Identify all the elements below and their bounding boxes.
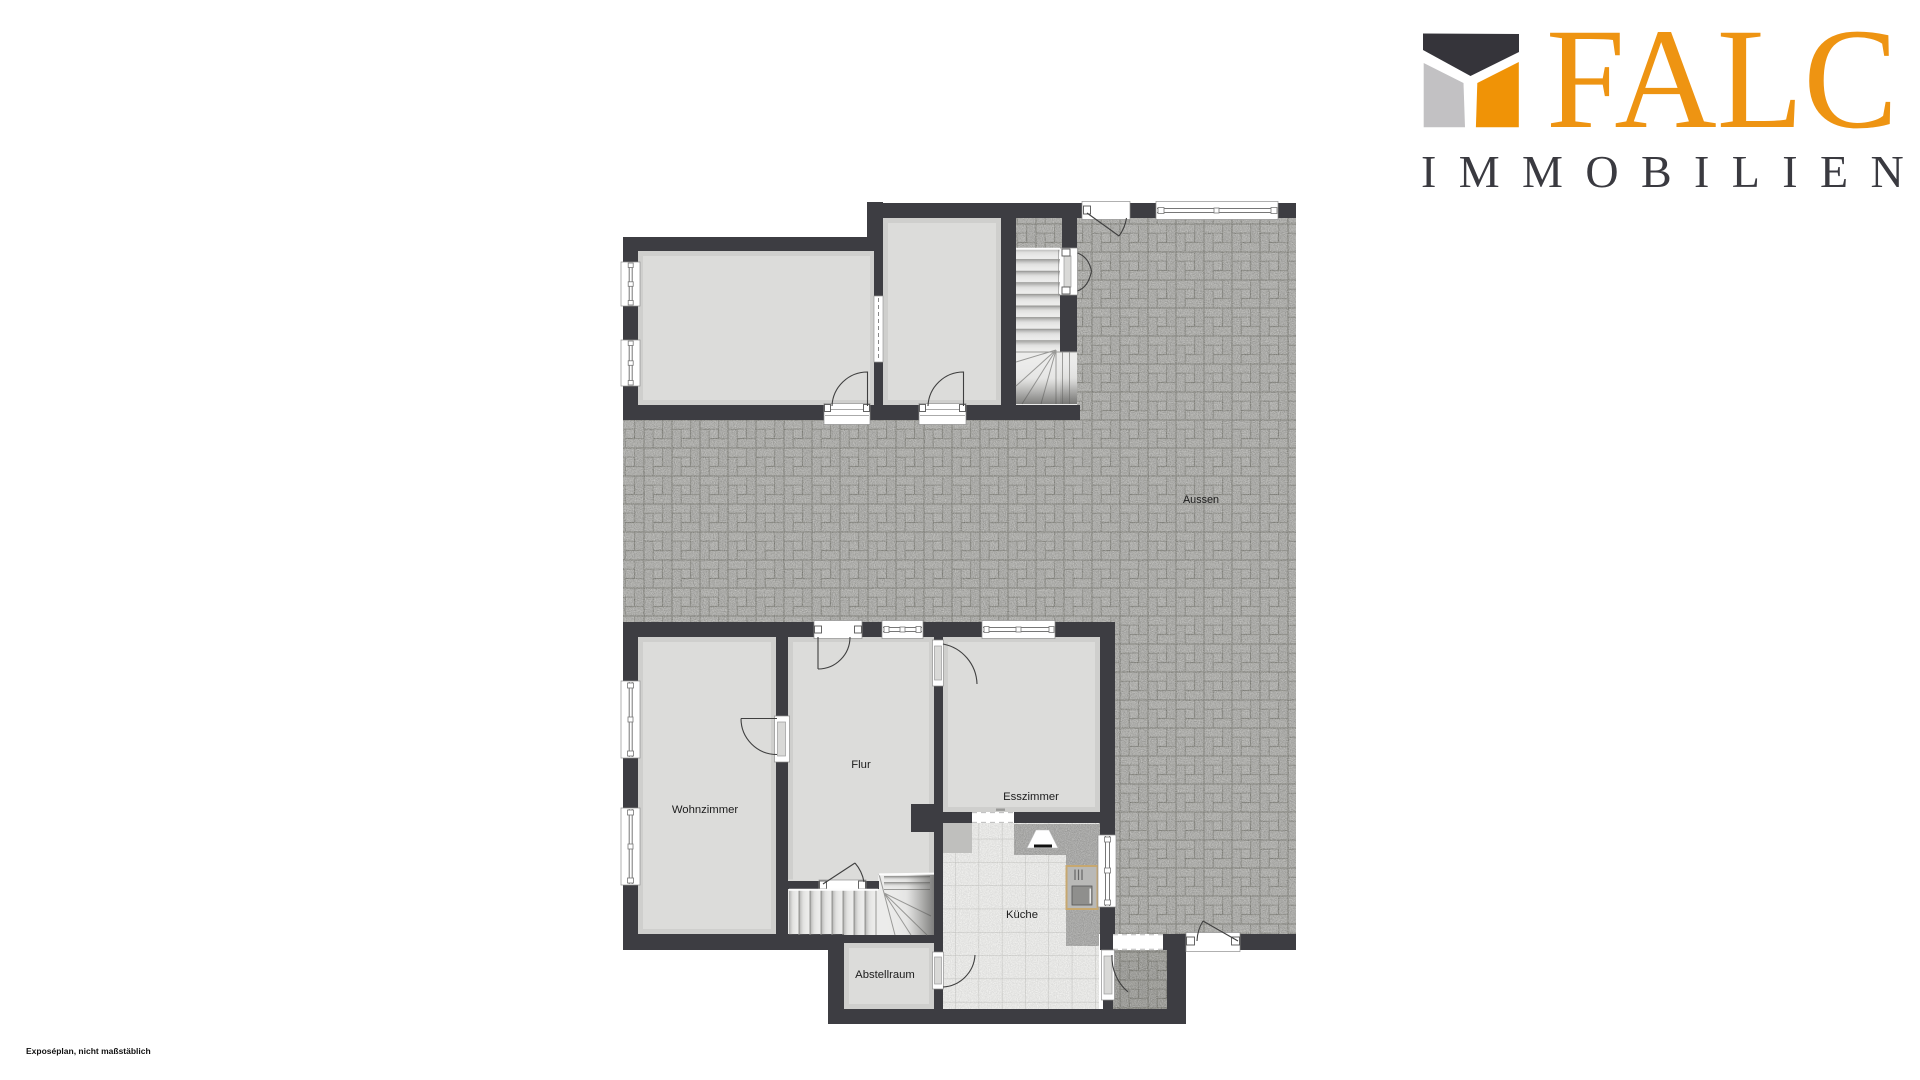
svg-text:Wohnzimmer: Wohnzimmer (672, 804, 739, 816)
svg-text:Flur: Flur (851, 759, 871, 771)
svg-text:Aussen: Aussen (1183, 494, 1219, 506)
svg-text:IMMOBILIEN: IMMOBILIEN (1421, 146, 1920, 197)
svg-text:Esszimmer: Esszimmer (1003, 791, 1059, 803)
svg-text:Küche: Küche (1006, 909, 1038, 921)
svg-text:Abstellraum: Abstellraum (855, 969, 915, 981)
svg-text:Exposéplan, nicht maßstäblich: Exposéplan, nicht maßstäblich (26, 1046, 151, 1056)
svg-text:FALC: FALC (1546, 0, 1898, 159)
